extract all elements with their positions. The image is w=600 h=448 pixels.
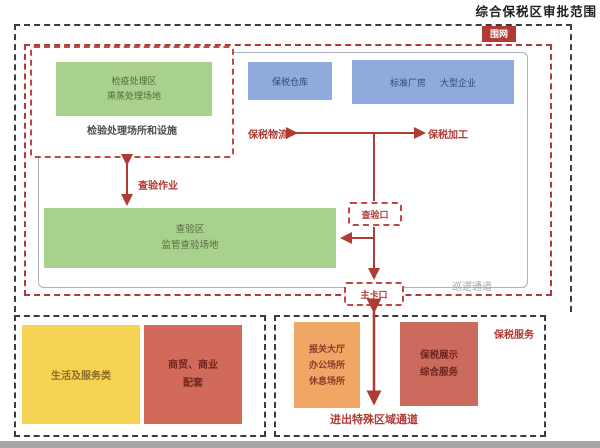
commerce-line1: 商贸、商业 [168,357,218,375]
commerce-box: 商贸、商业 配套 [144,325,242,424]
inspection-work-label: 查验作业 [138,177,178,192]
quarantine-caption: 检验处理场所和设施 [34,122,230,137]
quarantine-box: 检疫处理区 熏蒸处理场地 [56,62,212,116]
hall-line1: 报关大厅 [309,341,345,357]
quarantine-line1: 检疫处理区 [111,74,156,89]
enterprise-label: 大型企业 [440,76,476,89]
inspection-gate-box: 查验口 [348,202,402,226]
factory-label: 标准厂房 [390,76,426,89]
inspection-area-line2: 监管查验场地 [161,238,218,254]
special-zone-channel-label: 进出特殊区域通道 [284,411,464,427]
inspection-area-box: 查验区 监管查验场地 [44,208,336,268]
hall-line2: 办公场所 [309,357,345,373]
display-line2: 综合服务 [420,364,458,381]
display-line1: 保税展示 [420,347,458,364]
factory-enterprise-box: 标准厂房 大型企业 [352,60,514,104]
bonded-zone-diagram: 检疫处理区 熏蒸处理场地 检验处理场所和设施 保税仓库 标准厂房 大型企业 保税… [0,0,600,448]
patrol-passage-label: 巡逻通道 [452,278,492,293]
bonded-display-box: 保税展示 综合服务 [400,322,478,406]
living-service-box: 生活及服务类 [22,325,140,424]
page-title: 综合保税区审批范围 [475,1,597,20]
living-service-label: 生活及服务类 [51,367,111,382]
bonded-logistics-label: 保税物流 [248,126,288,141]
hall-line3: 休息场所 [309,373,345,389]
commerce-line2: 配套 [183,375,203,393]
page-edge-strip [0,441,600,448]
bonded-warehouse-label: 保税仓库 [272,75,308,88]
quarantine-line2: 熏蒸处理场地 [107,89,161,104]
bonded-warehouse-box: 保税仓库 [248,62,332,100]
bonded-service-label: 保税服务 [494,326,534,341]
customs-hall-box: 报关大厅 办公场所 休息场所 [294,322,360,408]
fence-label: 围网 [482,26,516,42]
bonded-processing-label: 保税加工 [428,126,468,141]
inspection-area-line1: 查验区 [176,222,205,238]
main-gate-box: 主卡口 [344,282,404,306]
